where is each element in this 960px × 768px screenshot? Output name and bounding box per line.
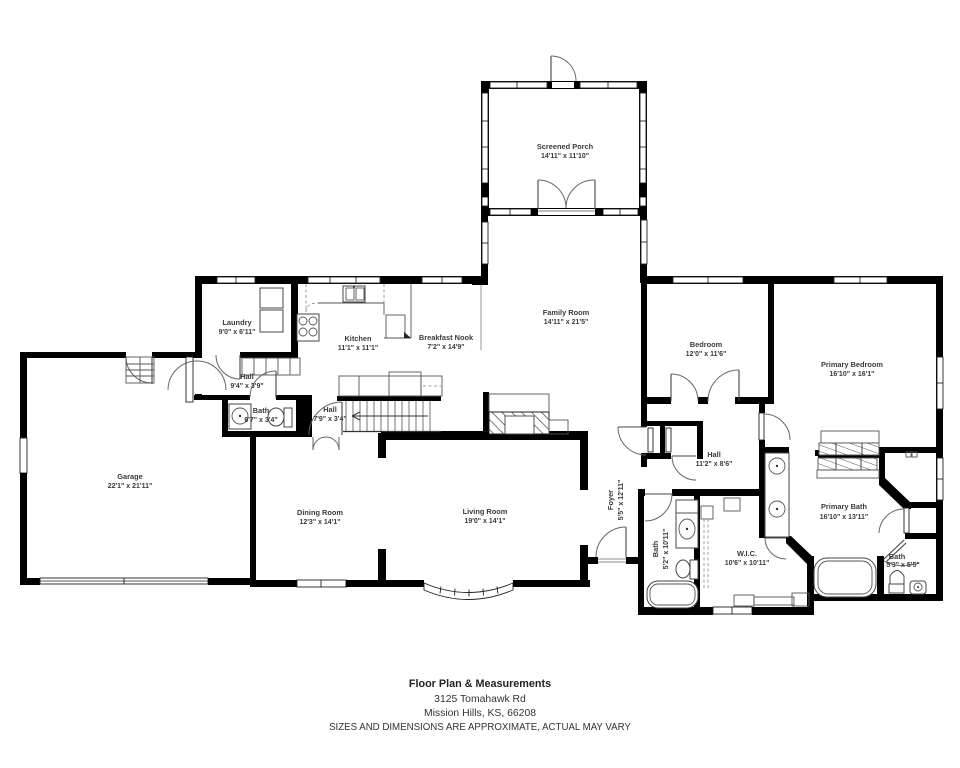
svg-text:10'6" x 10'11": 10'6" x 10'11" bbox=[725, 560, 770, 567]
svg-text:12'0" x 11'6": 12'0" x 11'6" bbox=[686, 351, 727, 358]
svg-text:Garage: Garage bbox=[117, 472, 142, 481]
svg-text:Foyer: Foyer bbox=[606, 490, 615, 510]
svg-text:SIZES AND DIMENSIONS ARE APPRO: SIZES AND DIMENSIONS ARE APPROXIMATE, AC… bbox=[329, 722, 631, 733]
svg-text:5'3" x 5'5": 5'3" x 5'5" bbox=[886, 562, 919, 569]
svg-text:Hall: Hall bbox=[323, 405, 337, 414]
svg-text:Bath: Bath bbox=[889, 552, 906, 561]
svg-text:Laundry: Laundry bbox=[222, 318, 252, 327]
svg-text:14'11" x 11'10": 14'11" x 11'10" bbox=[541, 153, 589, 160]
svg-text:12'3" x 14'1": 12'3" x 14'1" bbox=[299, 519, 340, 526]
svg-text:19'0" x 14'1": 19'0" x 14'1" bbox=[464, 518, 505, 525]
svg-text:Bath: Bath bbox=[253, 406, 270, 415]
svg-text:11'1" x 11'1": 11'1" x 11'1" bbox=[338, 345, 378, 352]
svg-text:22'1" x 21'11": 22'1" x 21'11" bbox=[108, 483, 153, 490]
svg-text:Dining Room: Dining Room bbox=[297, 508, 343, 517]
svg-text:Screened Porch: Screened Porch bbox=[537, 142, 594, 151]
svg-text:3125 Tomahawk Rd: 3125 Tomahawk Rd bbox=[434, 694, 526, 705]
svg-text:Breakfast Nook: Breakfast Nook bbox=[419, 333, 474, 342]
svg-text:Bedroom: Bedroom bbox=[690, 340, 723, 349]
svg-text:11'2" x 8'6": 11'2" x 8'6" bbox=[696, 461, 733, 468]
svg-text:Kitchen: Kitchen bbox=[344, 334, 372, 343]
svg-text:9'0" x 6'11": 9'0" x 6'11" bbox=[219, 329, 256, 336]
svg-text:Bath: Bath bbox=[651, 540, 660, 557]
svg-text:6'7" x 3'4": 6'7" x 3'4" bbox=[244, 417, 277, 424]
svg-text:5'5" x 12'11": 5'5" x 12'11" bbox=[618, 480, 625, 521]
svg-text:Primary Bath: Primary Bath bbox=[821, 502, 867, 511]
svg-text:16'10" x 16'1": 16'10" x 16'1" bbox=[829, 371, 874, 378]
svg-text:W.I.C.: W.I.C. bbox=[737, 549, 757, 558]
svg-text:Primary Bedroom: Primary Bedroom bbox=[821, 360, 883, 369]
svg-text:Living Room: Living Room bbox=[463, 507, 508, 516]
svg-text:Hall: Hall bbox=[707, 450, 721, 459]
svg-text:Floor Plan & Measurements: Floor Plan & Measurements bbox=[409, 678, 551, 690]
svg-text:Mission Hills, KS, 66208: Mission Hills, KS, 66208 bbox=[424, 708, 536, 719]
svg-text:Hall: Hall bbox=[240, 372, 254, 381]
svg-text:Family Room: Family Room bbox=[543, 308, 590, 317]
svg-text:5'2" x 10'11": 5'2" x 10'11" bbox=[663, 529, 670, 570]
svg-text:7'2" x 14'9": 7'2" x 14'9" bbox=[427, 344, 464, 351]
svg-text:9'4" x 3'9": 9'4" x 3'9" bbox=[230, 383, 263, 390]
svg-text:16'10" x 13'11": 16'10" x 13'11" bbox=[820, 514, 869, 521]
svg-text:14'11" x 21'5": 14'11" x 21'5" bbox=[544, 319, 589, 326]
svg-text:7'9" x 3'4": 7'9" x 3'4" bbox=[313, 416, 346, 423]
